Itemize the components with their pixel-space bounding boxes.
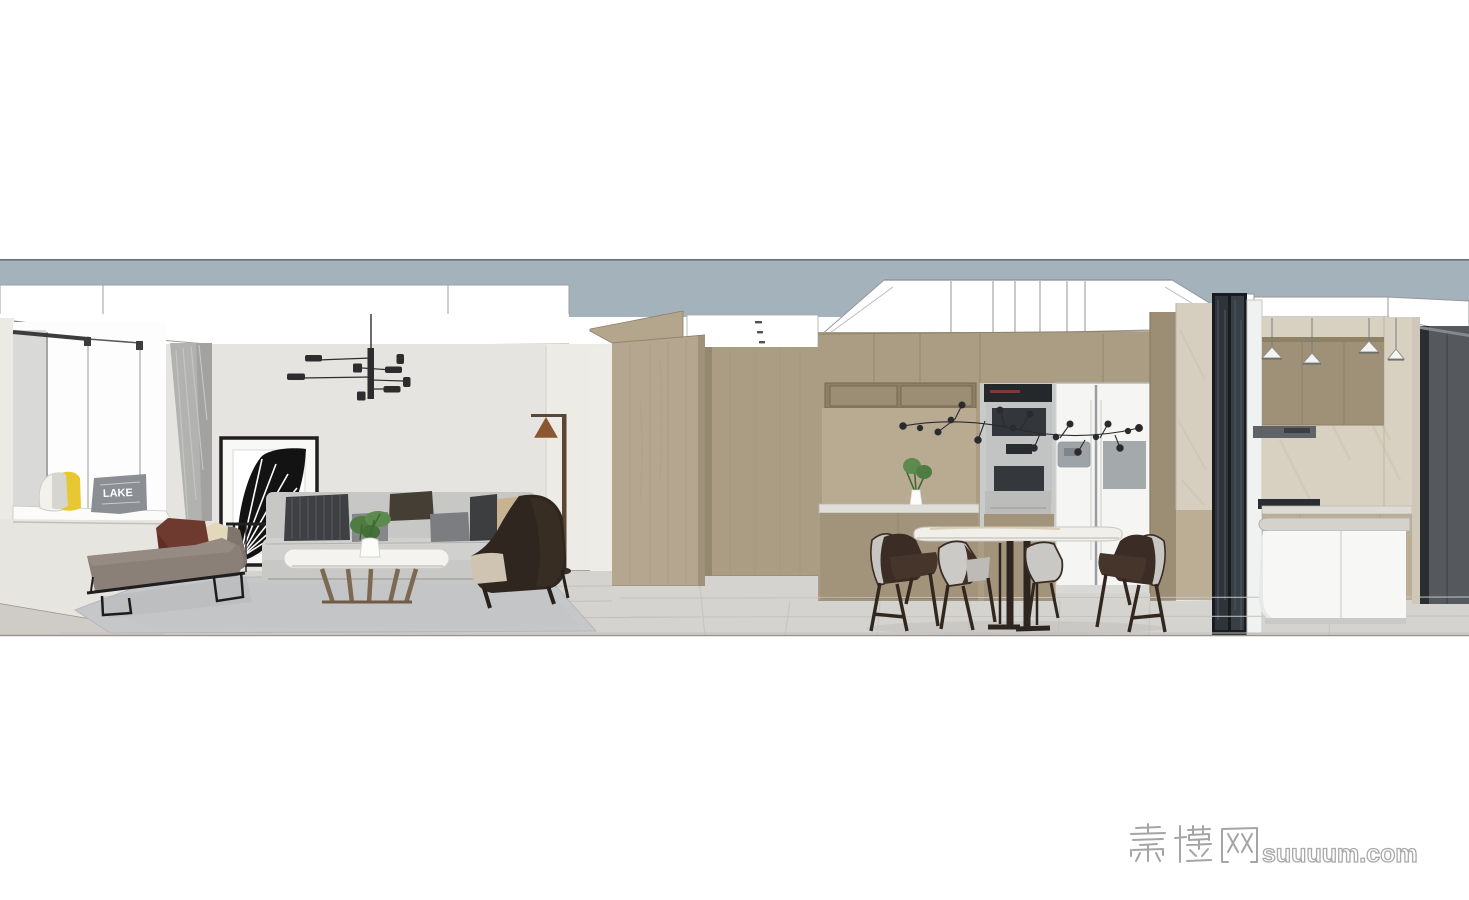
svg-text:suuuum.com: suuuum.com xyxy=(1262,840,1418,868)
svg-text:LAKE: LAKE xyxy=(103,487,133,500)
